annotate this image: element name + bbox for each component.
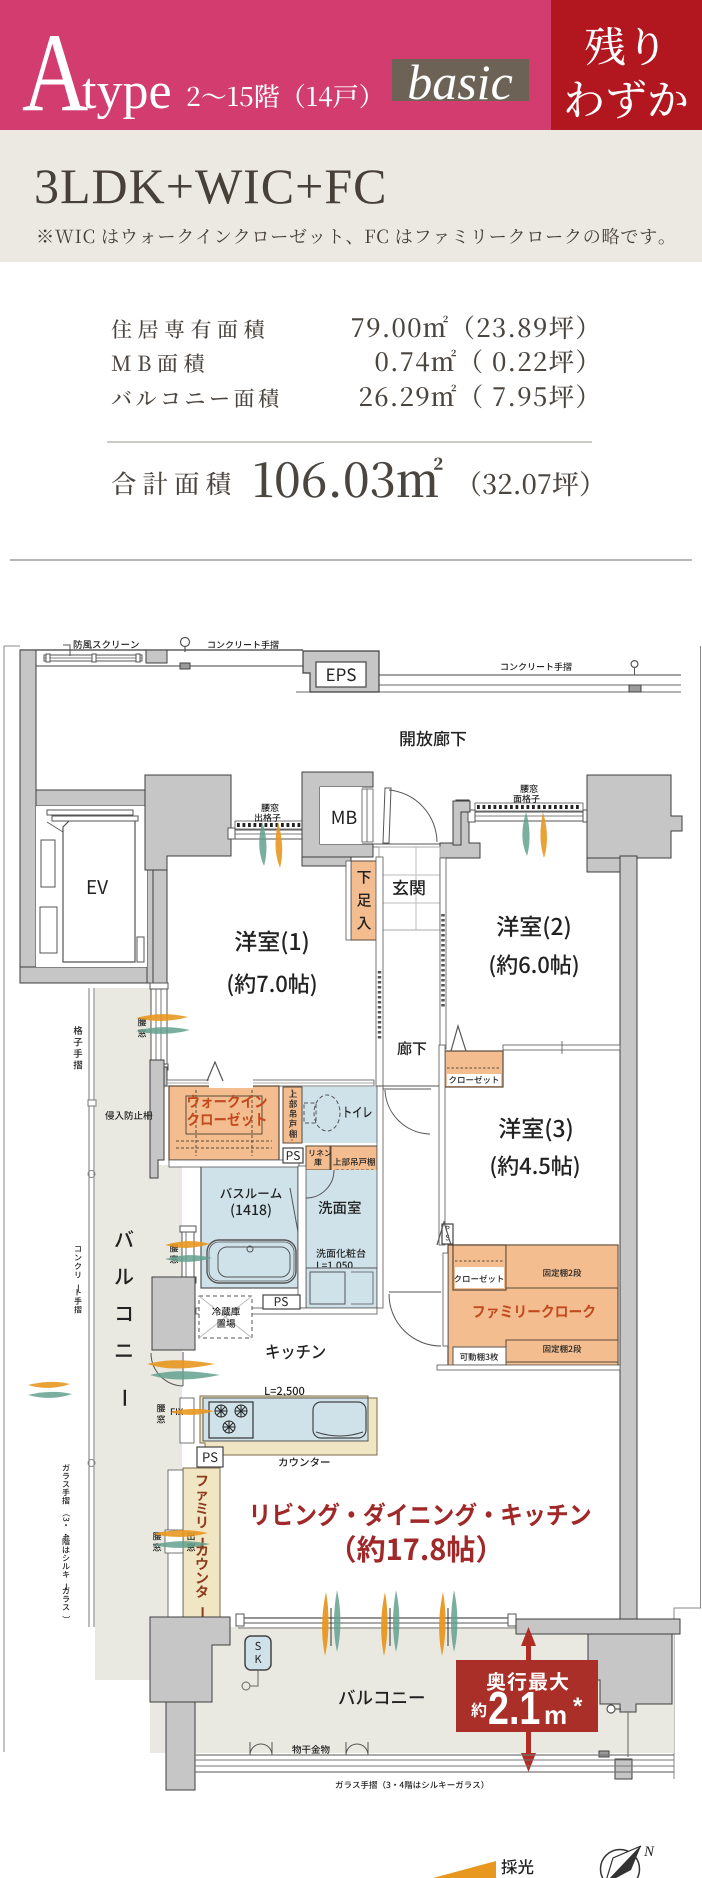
svg-text:*: *: [573, 1693, 583, 1720]
svg-text:2.1: 2.1: [488, 1682, 540, 1733]
svg-text:basic: basic: [407, 54, 513, 110]
svg-text:N: N: [643, 1844, 655, 1860]
svg-text:A: A: [22, 12, 88, 136]
svg-text:3LDK+WIC+FC: 3LDK+WIC+FC: [34, 158, 388, 214]
svg-text:type: type: [82, 63, 172, 120]
svg-text:m: m: [544, 1700, 567, 1730]
